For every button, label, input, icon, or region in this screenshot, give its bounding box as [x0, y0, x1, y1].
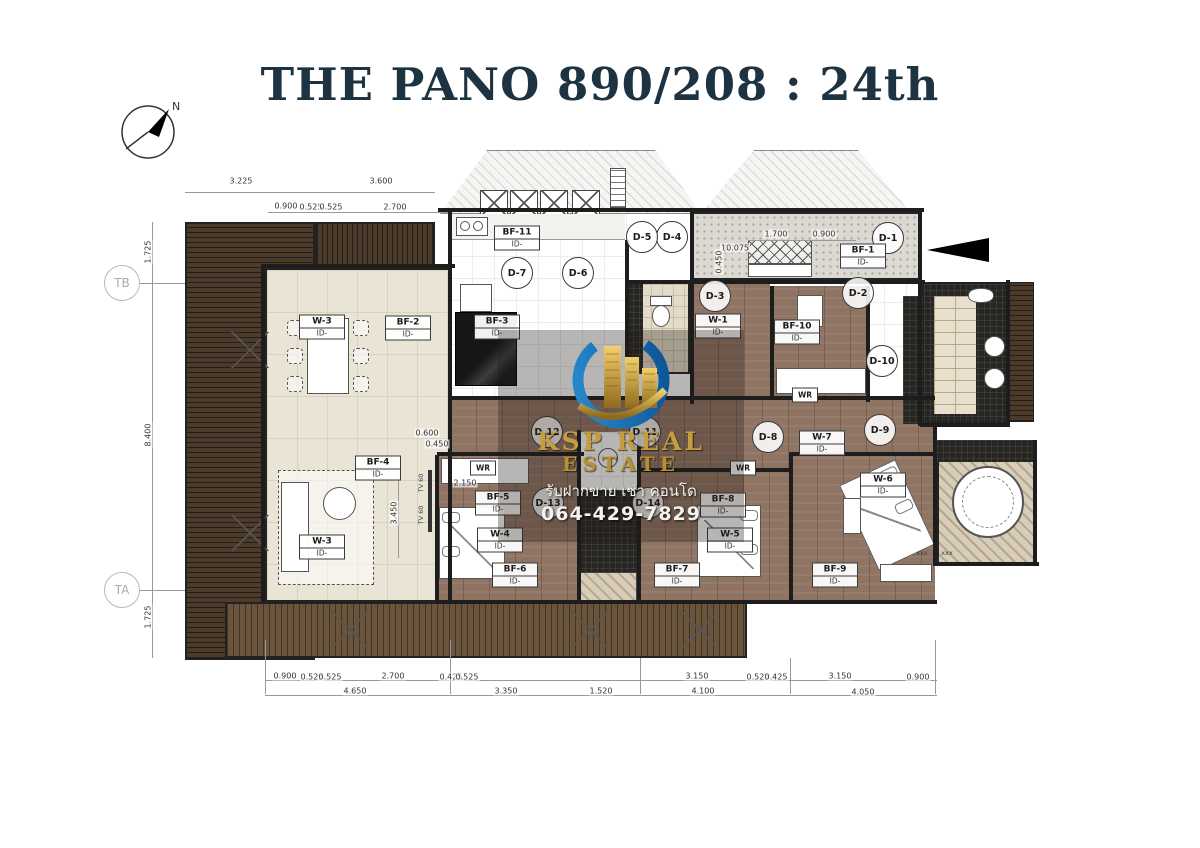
wardrobe-label: WR: [792, 388, 818, 403]
skylight-panel-icon: [510, 190, 538, 216]
dimension-label: 4.650: [343, 687, 368, 696]
dimension-label: 0.525: [455, 673, 480, 682]
closet-unit: [776, 368, 866, 394]
dimension-label: 10.075: [720, 244, 750, 253]
shower-floor: [579, 572, 637, 602]
dimension-label: 0.900: [906, 673, 931, 682]
deck-brace-icon: [670, 612, 730, 648]
dimension-label: 0.450: [425, 440, 450, 449]
dimension-line: [640, 658, 641, 694]
misc-label: xxx: [915, 549, 929, 557]
skylight-roof-right: [702, 150, 910, 212]
dimension-line: [265, 640, 266, 694]
sink-basin-icon: [473, 221, 483, 231]
dimension-line: [748, 240, 856, 241]
skylight-panel-icon: [480, 190, 508, 216]
wall-segment: [435, 600, 937, 604]
stove-cooktop: [460, 284, 492, 312]
wall-segment: [918, 212, 922, 426]
fixture-label: BF-1ID-: [840, 244, 886, 269]
wall-segment: [261, 264, 265, 602]
dimension-label: 0.525: [319, 203, 344, 212]
dimension-label: 1.520: [589, 687, 614, 696]
dining-chair: [287, 348, 303, 364]
tv-wall: [428, 470, 432, 532]
grid-bubble: TA: [104, 572, 140, 608]
dimension-line: [790, 658, 791, 694]
dimension-label: 3.225: [229, 177, 254, 186]
north-compass-icon: N: [112, 92, 188, 168]
wall-segment: [438, 208, 924, 212]
window-label: W-7ID-: [799, 431, 845, 456]
dimension-label: 1.700: [764, 230, 789, 239]
skylight-panel-icon: [540, 190, 568, 216]
fixture-label: BF-7ID-: [654, 563, 700, 588]
window-label: W-6ID-: [860, 473, 906, 498]
dimension-label: 1.725: [144, 605, 153, 630]
jacuzzi-inner: [962, 476, 1014, 528]
wall-segment: [627, 280, 925, 284]
dimension-label: 0.900: [812, 230, 837, 239]
wall-segment: [1006, 280, 1010, 426]
wall-segment: [935, 562, 1039, 566]
dimension-label: 0.900: [274, 202, 299, 211]
dining-chair: [287, 376, 303, 392]
dimension-label: 0.525: [318, 673, 343, 682]
master-bathroom-tile-strip: [934, 296, 976, 414]
door-label: D-7: [501, 257, 533, 289]
fixture-label: BF-4ID-: [355, 456, 401, 481]
door-label: D-6: [562, 257, 594, 289]
dimension-line: [138, 283, 185, 284]
ksp-logo: [546, 330, 696, 430]
wall-segment: [1033, 440, 1037, 566]
dimension-label: 3.150: [828, 672, 853, 681]
wall-segment: [789, 455, 793, 603]
dimension-label: 2.150: [453, 479, 478, 488]
watermark-thai-tagline: รับฝากขาย เช่า คอนโด: [545, 479, 697, 503]
fixture-label: BF-2ID-: [385, 316, 431, 341]
door-label: D-4: [656, 221, 688, 253]
door-label: D-2: [842, 277, 874, 309]
skylight-panel-icon: [572, 190, 600, 216]
balcony-deck-top: [315, 222, 435, 270]
wall-segment: [448, 212, 452, 602]
floor-plan-page: THE PANO 890/208 : 24th N: [0, 0, 1200, 848]
door-label: D-5: [626, 221, 658, 253]
watermark-brand-line2: ESTATE: [562, 454, 680, 474]
fixture-label: BF-9ID-: [812, 563, 858, 588]
door-label: D-10: [866, 345, 898, 377]
toilet: [968, 288, 994, 303]
dimension-label: 3.450: [390, 501, 399, 526]
dimension-label: 4.050: [851, 688, 876, 697]
door-label: D-9: [864, 414, 896, 446]
wardrobe-label: WR: [470, 461, 496, 476]
watermark-brand-line1: KSP REAL: [537, 430, 705, 454]
entrance-arrow-icon: [927, 238, 989, 262]
grid-bubble: TB: [104, 265, 140, 301]
misc-label: TV 60: [417, 505, 425, 526]
wall-segment: [435, 455, 439, 604]
window-label: W-3ID-: [299, 315, 345, 340]
door-label: D-8: [752, 421, 784, 453]
dimension-line: [935, 640, 936, 694]
dimension-line: [450, 640, 451, 694]
dimension-line: [268, 212, 450, 213]
misc-label: TV 60: [417, 473, 425, 494]
dining-chair: [353, 348, 369, 364]
entry-bench: [748, 264, 812, 277]
dimension-line: [185, 192, 435, 193]
dimension-label: 3.150: [685, 672, 710, 681]
watermark-phone-number: 064-429-7829: [541, 503, 701, 525]
dimension-label: 3.600: [369, 177, 394, 186]
fixture-label: BF-11ID-: [494, 226, 540, 251]
service-balcony-strip: [1008, 282, 1034, 422]
master-desk: [843, 498, 861, 534]
watermark: KSP REAL ESTATE รับฝากขาย เช่า คอนโด 064…: [498, 330, 744, 542]
shoe-cabinet: [748, 240, 812, 264]
toilet-bowl: [652, 305, 670, 327]
wall-segment: [920, 423, 1010, 427]
door-label: D-3: [699, 280, 731, 312]
wall-segment: [263, 264, 455, 268]
balcony-deck-bottom: [225, 602, 747, 658]
roof-ladder: [610, 168, 626, 208]
dimension-label: 0.900: [273, 672, 298, 681]
dimension-label: 4.100: [691, 687, 716, 696]
compass-north-letter: N: [172, 100, 180, 113]
dining-chair: [353, 320, 369, 336]
dimension-label: 2.700: [381, 672, 406, 681]
window-label: W-3ID-: [299, 535, 345, 560]
dining-chair: [353, 376, 369, 392]
coffee-table: [323, 487, 356, 520]
bathroom-sink: [984, 336, 1005, 357]
dimension-label: 8.400: [144, 423, 153, 448]
wall-segment: [933, 423, 937, 566]
deck-brace-icon: [320, 612, 380, 648]
fixture-label: BF-6ID-: [492, 563, 538, 588]
dimension-line: [138, 590, 185, 591]
misc-label: xxx: [940, 549, 954, 557]
dimension-label: 2.700: [383, 203, 408, 212]
deck-brace-icon: [560, 612, 620, 648]
bathroom-sink: [984, 368, 1005, 389]
dimension-label: 3.350: [494, 687, 519, 696]
dimension-label: 0.425: [764, 673, 789, 682]
dimension-label: 0.450: [715, 250, 724, 275]
dimension-label: 1.725: [144, 240, 153, 265]
master-bench: [880, 564, 932, 582]
terrace-dark-band: [937, 440, 1037, 462]
dimension-label: 0.600: [415, 429, 440, 438]
fixture-label: BF-10ID-: [774, 320, 820, 345]
sink-basin-icon: [460, 221, 470, 231]
